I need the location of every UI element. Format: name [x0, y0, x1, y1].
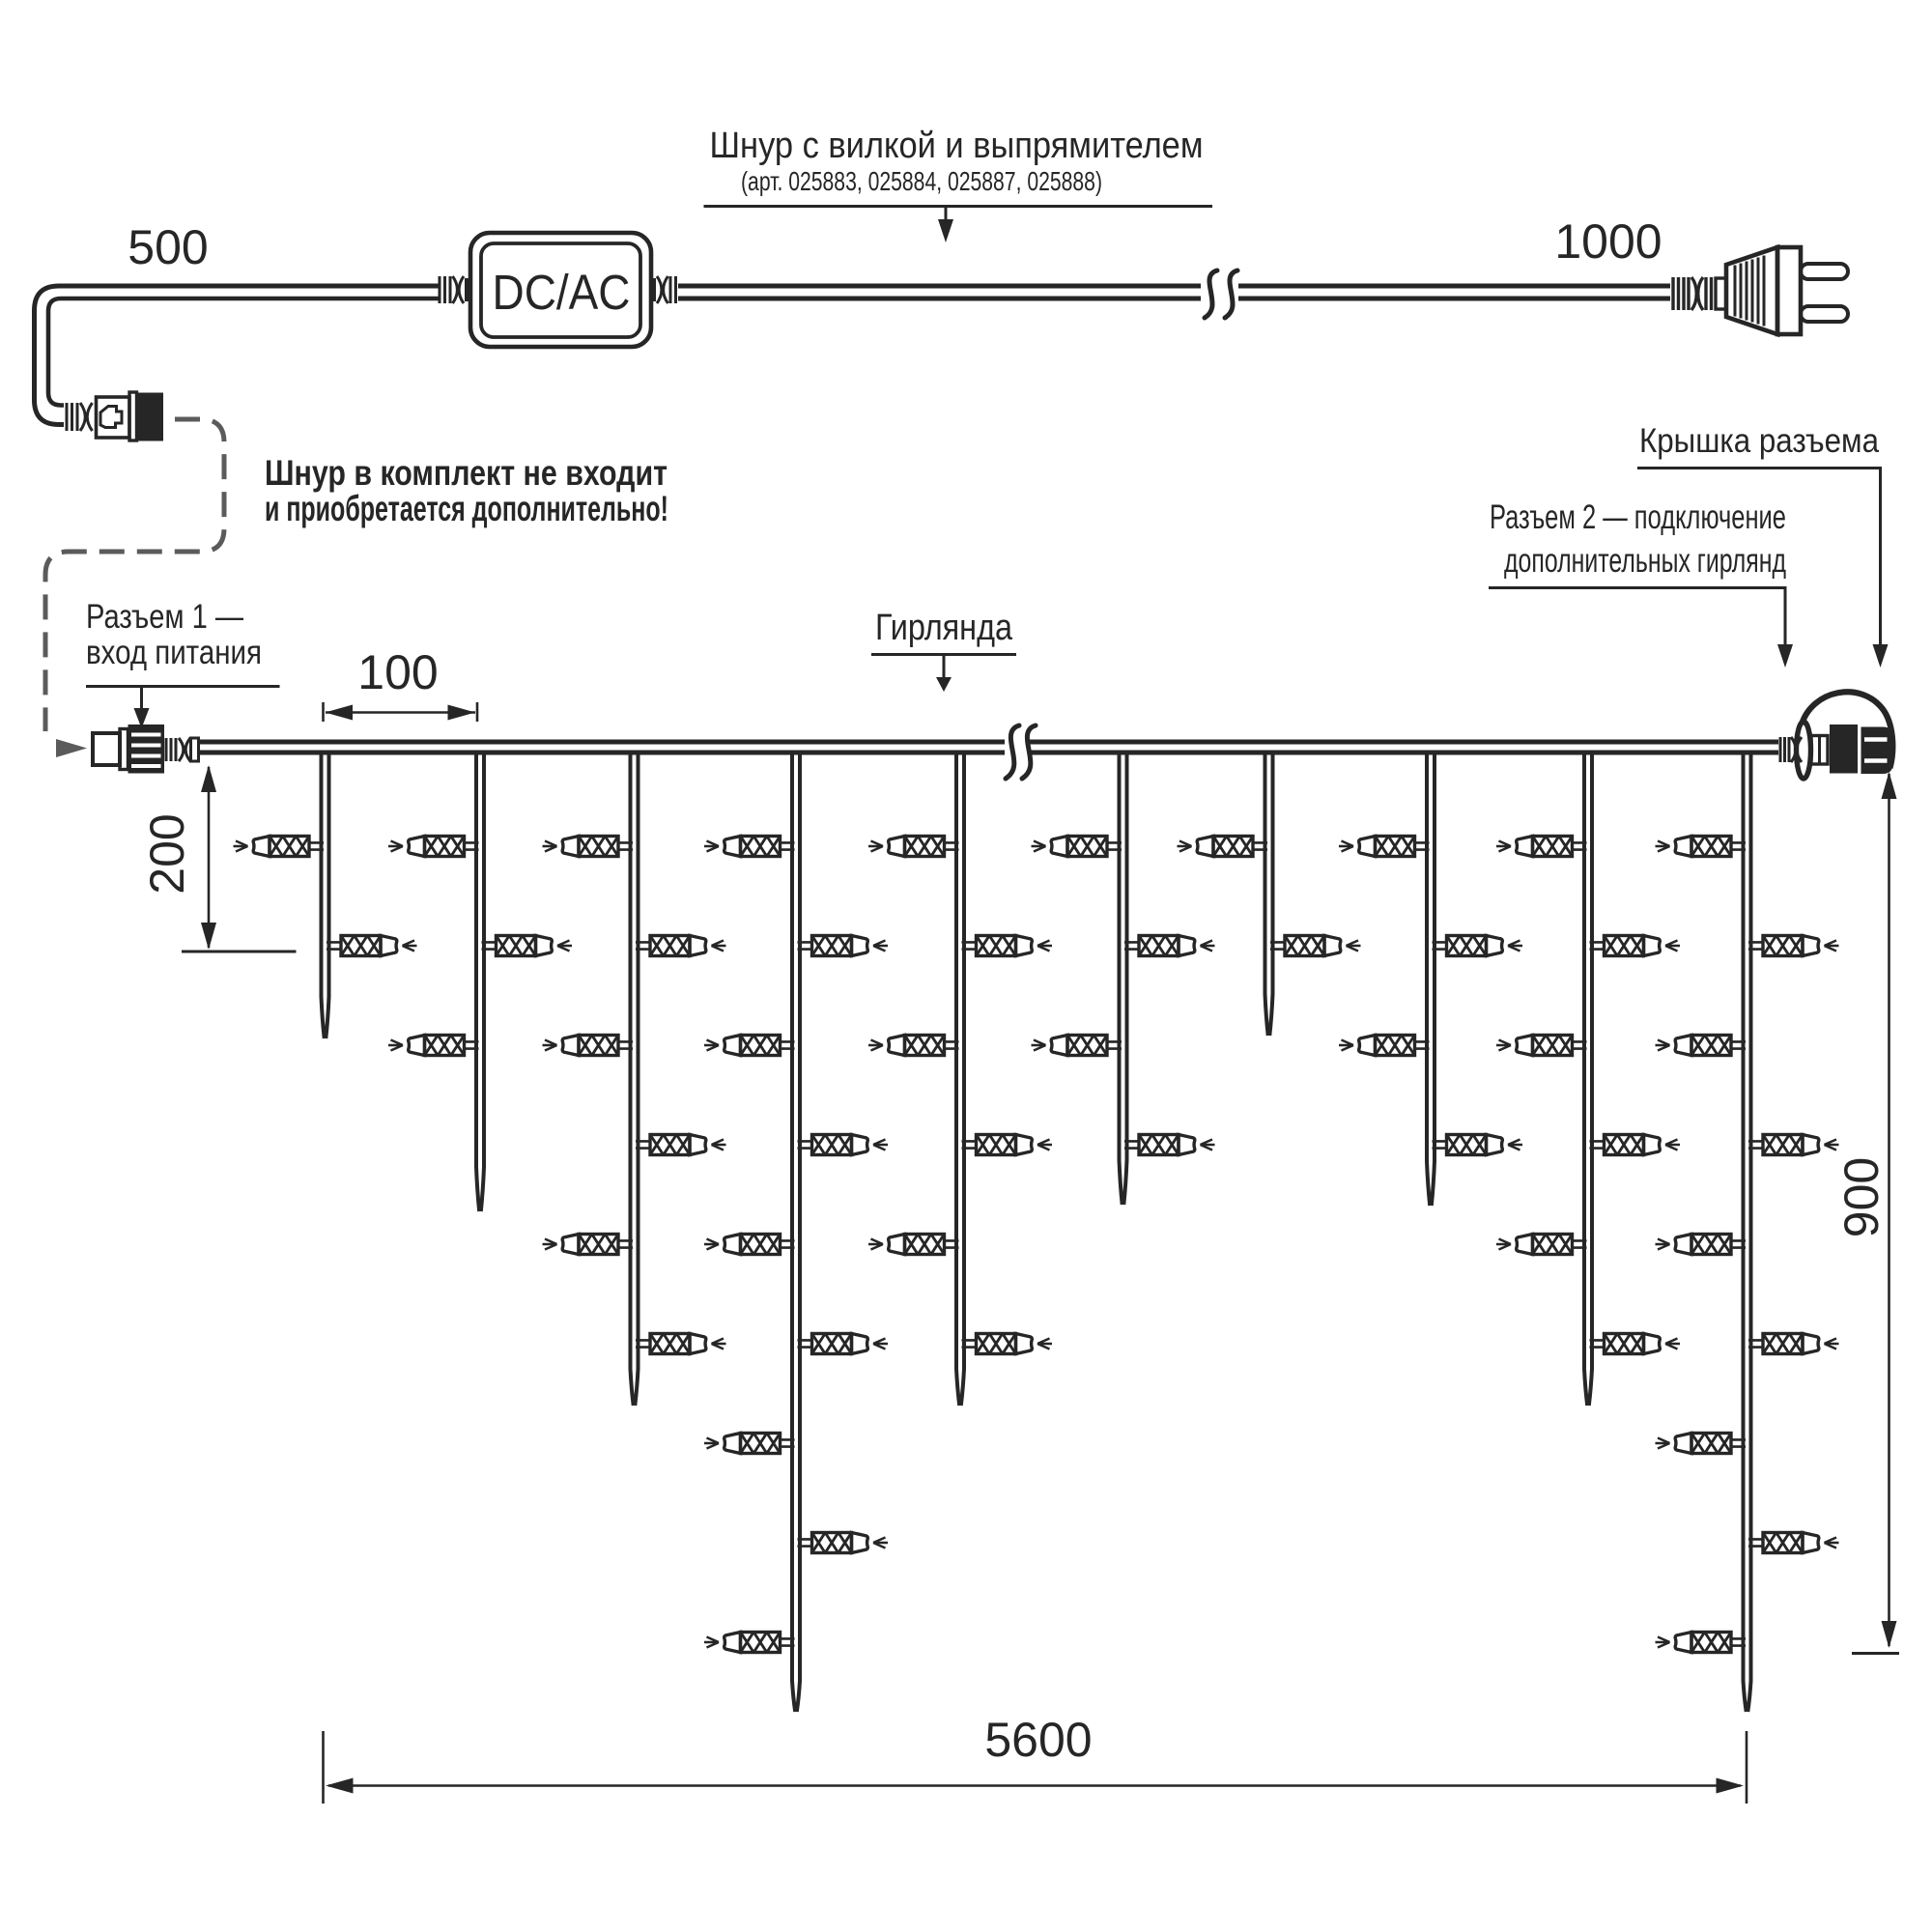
svg-text:Разъем 2 — подключение: Разъем 2 — подключение	[1490, 497, 1786, 536]
svg-text:5600: 5600	[984, 1713, 1092, 1767]
svg-text:200: 200	[140, 813, 194, 894]
svg-text:Крышка разъема: Крышка разъема	[1639, 421, 1879, 460]
svg-text:Шнур с вилкой и выпрямителем: Шнур с вилкой и выпрямителем	[710, 126, 1204, 166]
svg-text:DC/AC: DC/AC	[493, 265, 631, 320]
svg-text:Гирлянда: Гирлянда	[875, 608, 1013, 648]
svg-text:Разъем 1 —: Разъем 1 —	[86, 597, 243, 636]
svg-text:дополнительных гирлянд: дополнительных гирлянд	[1504, 541, 1786, 580]
svg-text:вход питания: вход питания	[86, 633, 262, 671]
svg-text:1000: 1000	[1554, 214, 1662, 269]
svg-text:500: 500	[128, 220, 208, 274]
svg-text:и приобретается дополнительно!: и приобретается дополнительно!	[265, 489, 668, 528]
svg-text:100: 100	[357, 645, 438, 699]
svg-text:(арт. 025883, 025884, 025887,: (арт. 025883, 025884, 025887, 025888)	[741, 166, 1102, 196]
svg-text:Шнур в комплект не входит: Шнур в комплект не входит	[265, 453, 668, 493]
svg-text:900: 900	[1834, 1157, 1889, 1237]
